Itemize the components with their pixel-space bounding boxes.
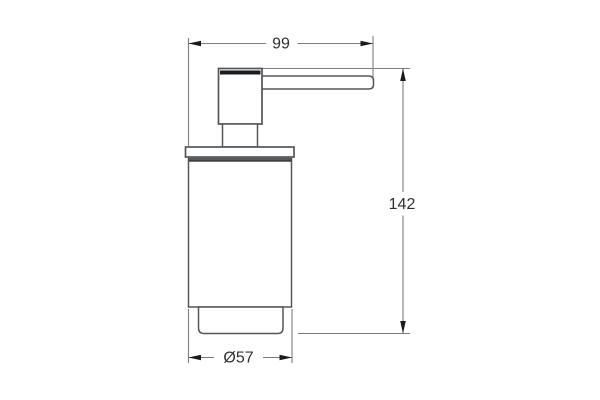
height-dimension: 142 (298, 69, 415, 334)
height-arrowhead-bottom (400, 321, 406, 334)
technical-drawing-svg: 99 142 (0, 0, 600, 400)
pump-head-outline (219, 69, 263, 125)
height-arrowhead-top (400, 69, 406, 82)
width-arrowhead-right (361, 41, 374, 46)
spout-outline (260, 76, 374, 89)
diameter-arrowhead-left (189, 355, 202, 360)
base-outline (199, 307, 284, 334)
diameter-dimension-label: Ø57 (223, 350, 253, 367)
container-body-outline (189, 159, 292, 308)
pump-neck-outline (223, 124, 258, 147)
lid-collar-outline (186, 147, 295, 157)
pump-head-top-band (220, 71, 261, 75)
height-dimension-label: 142 (389, 196, 416, 213)
width-dimension-label: 99 (272, 36, 290, 53)
diameter-arrowhead-right (280, 355, 293, 360)
width-arrowhead-left (189, 41, 202, 46)
width-dimension: 99 (189, 36, 374, 147)
dispenser-figure (186, 69, 411, 334)
drawing-canvas: 99 142 (0, 0, 600, 400)
